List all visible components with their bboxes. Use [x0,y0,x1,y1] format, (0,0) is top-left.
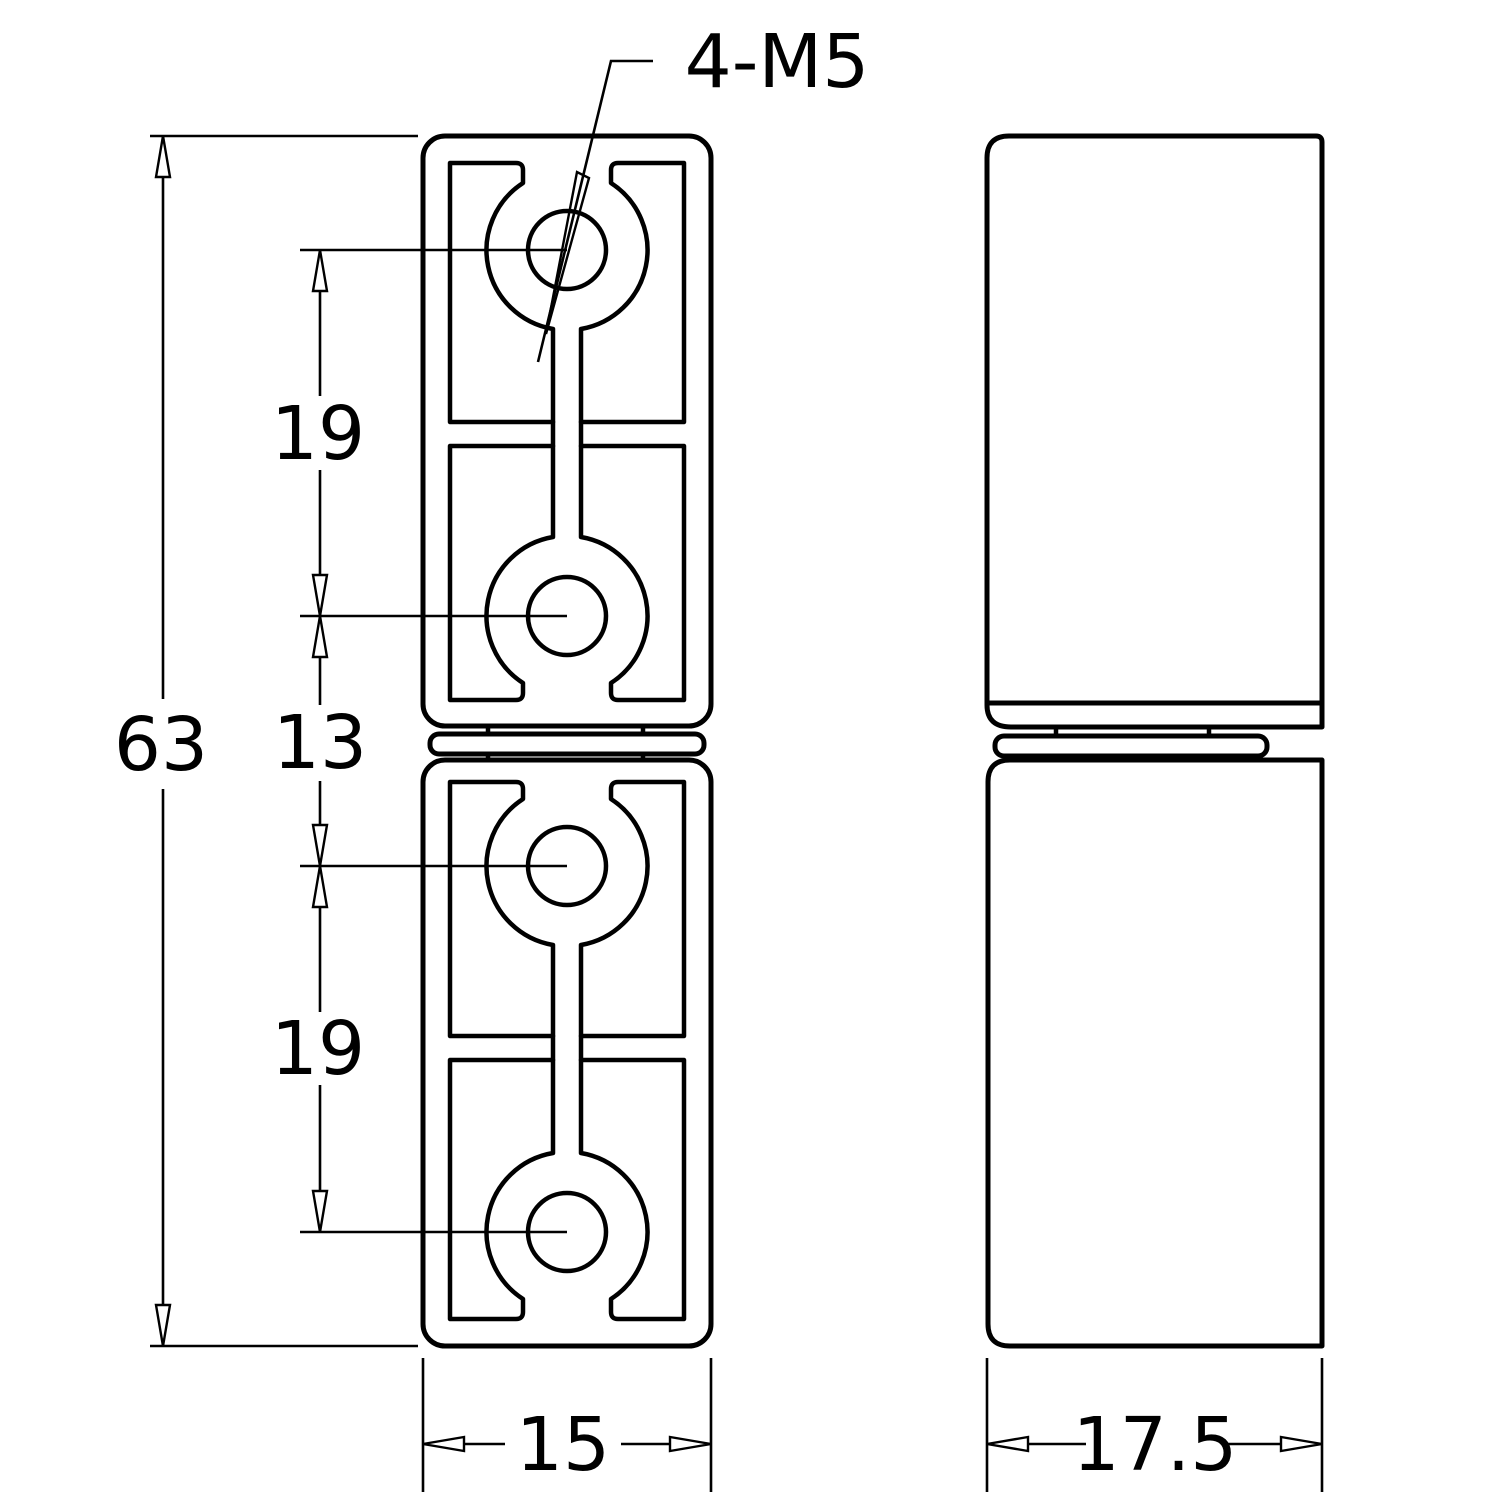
hinge-dimension-drawing: 63 19 13 19 15 17.5 4-M5 [0,0,1500,1500]
dim-19-bottom-label: 19 [271,1006,365,1092]
dim-17-5-label: 17.5 [1073,1402,1238,1488]
dim-15-label: 15 [516,1402,610,1488]
dim-63-label: 63 [114,702,208,788]
dim-13-label: 13 [273,700,367,786]
drawing-canvas: 63 19 13 19 15 17.5 4-M5 [0,0,1500,1500]
thread-callout-label: 4-M5 [685,19,870,105]
dim-19-top-label: 19 [271,391,365,477]
paper-background [0,0,1500,1500]
